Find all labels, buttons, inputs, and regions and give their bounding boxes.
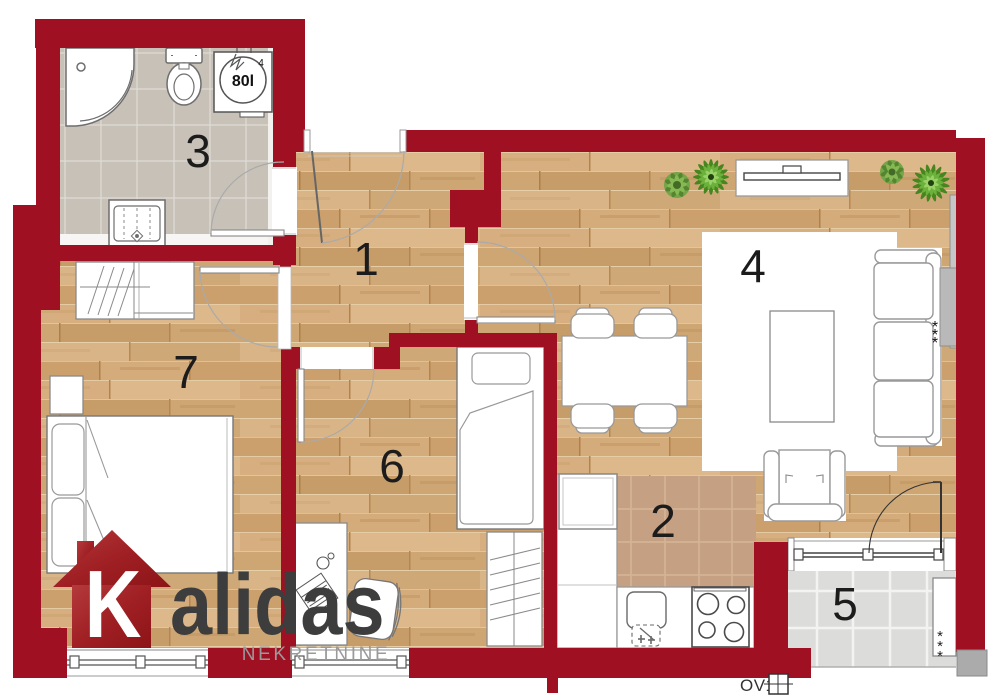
svg-text:4: 4 [740,240,766,292]
svg-text:K: K [85,551,142,658]
svg-text:7: 7 [173,346,199,398]
svg-text:alidas: alidas [170,558,385,654]
svg-text:80l: 80l [232,73,254,90]
svg-text:1: 1 [353,233,379,285]
svg-text:5: 5 [832,578,858,630]
svg-text:*: * [932,335,938,352]
svg-text:2: 2 [650,495,676,547]
svg-text:NEKRETNINE: NEKRETNINE [242,644,390,665]
svg-text:4: 4 [258,58,264,69]
svg-text:6: 6 [379,440,405,492]
svg-text:*: * [937,648,943,665]
svg-text:3: 3 [185,125,211,177]
